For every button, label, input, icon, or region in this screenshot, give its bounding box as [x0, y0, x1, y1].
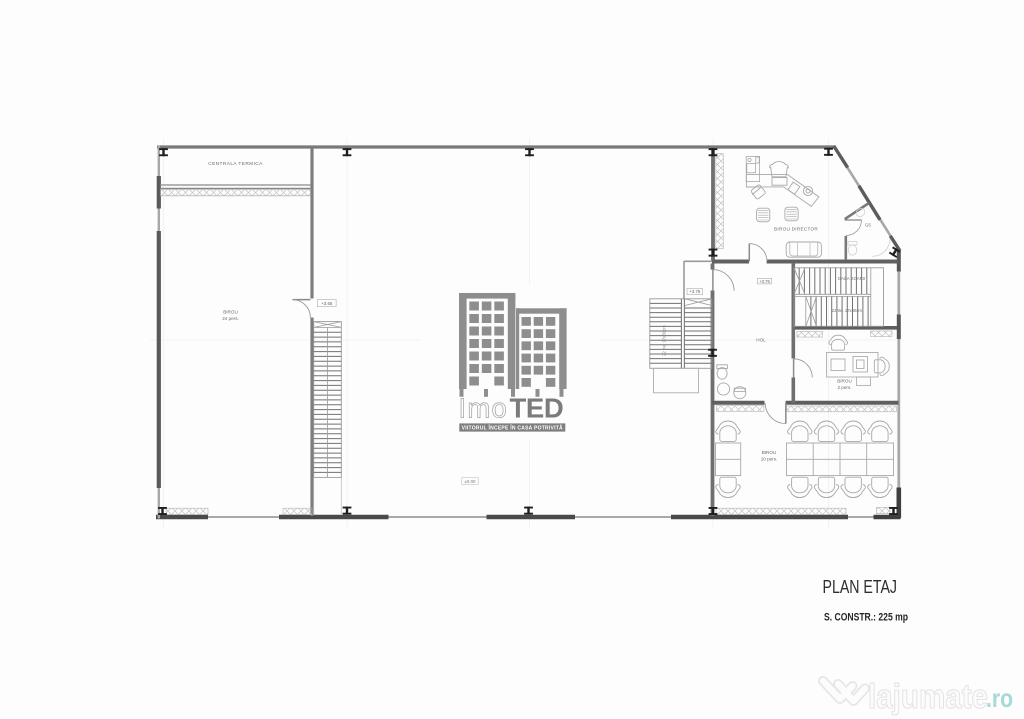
svg-text:VIITORUL ÎNCEPE ÎN CASA POTRIV: VIITORUL ÎNCEPE ÎN CASA POTRIVITĂ — [462, 423, 563, 431]
svg-text:10 pers.: 10 pers. — [761, 457, 778, 462]
svg-text:+3.65: +3.65 — [321, 301, 333, 306]
svg-text:BIROU: BIROU — [837, 379, 852, 384]
svg-text:+3.75: +3.75 — [759, 279, 770, 284]
svg-text:PLAN ETAJ: PLAN ETAJ — [823, 577, 898, 597]
svg-text:Imo: Imo — [459, 393, 508, 424]
svg-text:S. CONSTR.: 225 mp: S. CONSTR.: 225 mp — [824, 612, 908, 624]
svg-text:HOL: HOL — [756, 338, 766, 343]
svg-text:2 pers.: 2 pers. — [837, 385, 851, 390]
svg-text:+3.75: +3.75 — [689, 289, 701, 294]
svg-text:CASA SCARII: CASA SCARII — [838, 276, 866, 281]
svg-text:BIROU: BIROU — [762, 450, 777, 455]
svg-text:±0.00: ±0.00 — [465, 479, 477, 484]
svg-text:lajumate: lajumate — [868, 678, 988, 716]
svg-text:BIROU DIRECTOR: BIROU DIRECTOR — [774, 227, 818, 232]
svg-text:CENTRALA TERMICA: CENTRALA TERMICA — [208, 161, 263, 167]
svg-text:.ro: .ro — [986, 683, 1013, 713]
svg-text:GS: GS — [865, 223, 871, 228]
svg-text:TED: TED — [510, 393, 564, 424]
svg-text:22 tre. 17x30cm: 22 tre. 17x30cm — [662, 325, 667, 356]
svg-text:24 pers.: 24 pers. — [222, 316, 239, 321]
svg-text:BIROU: BIROU — [223, 310, 238, 315]
svg-text:22 tre. 17x30cm: 22 tre. 17x30cm — [832, 308, 863, 313]
